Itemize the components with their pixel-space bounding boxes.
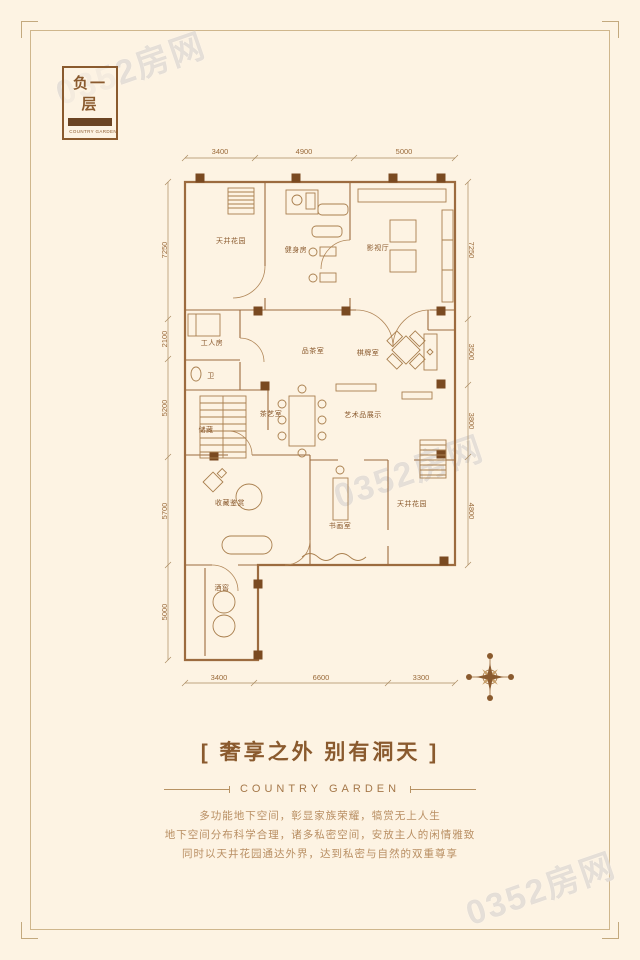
room-label: 卫 bbox=[207, 372, 215, 380]
dim-left-1: 7250 bbox=[160, 242, 169, 259]
maid-room-furniture bbox=[188, 314, 220, 381]
dim-bottom-1: 3400 bbox=[211, 673, 228, 682]
dim-right-2: 3500 bbox=[467, 344, 476, 361]
room-label: 酒窖 bbox=[215, 583, 230, 592]
brochure-page: 0352房网 0352房网 0352房网 负一层 COUNTRY GARDEN … bbox=[0, 0, 640, 960]
corner-mark bbox=[21, 922, 38, 939]
description: 多功能地下空间，彰显家族荣耀，犒赏无上人生 地下空间分布科学合理，诸多私密空间，… bbox=[0, 807, 640, 864]
dim-right-1: 7250 bbox=[467, 242, 476, 259]
corner-mark bbox=[602, 21, 619, 38]
footer: [ 奢享之外 别有洞天 ] COUNTRY GARDEN 多功能地下空间，彰显家… bbox=[0, 736, 640, 864]
dim-bottom-3: 3300 bbox=[413, 673, 430, 682]
room-label: 品茶室 bbox=[302, 346, 325, 355]
description-line: 地下空间分布科学合理，诸多私密空间，安放主人的闲情雅致 bbox=[0, 826, 640, 845]
fireplace bbox=[424, 334, 437, 370]
floor-plan: 3400 4900 5000 3400 6600 3300 7250 2100 … bbox=[140, 140, 520, 710]
room-label: 储藏 bbox=[199, 425, 214, 434]
lightwell-grille-bottom bbox=[420, 440, 446, 478]
dim-bottom-2: 6600 bbox=[313, 673, 330, 682]
calligraphy-desk bbox=[333, 466, 348, 520]
dim-left-3: 5200 bbox=[160, 400, 169, 417]
room-label: 茶艺室 bbox=[260, 409, 283, 418]
dim-top-1: 3400 bbox=[212, 147, 229, 156]
floor-badge: 负一层 COUNTRY GARDEN bbox=[62, 66, 118, 140]
dim-left-5: 5000 bbox=[160, 604, 169, 621]
dim-left-4: 5700 bbox=[160, 503, 169, 520]
corner-mark bbox=[602, 922, 619, 939]
room-label: 艺术品展示 bbox=[344, 410, 382, 419]
dim-right-3: 3800 bbox=[467, 413, 476, 430]
dimension-labels: 3400 4900 5000 3400 6600 3300 7250 2100 … bbox=[160, 147, 476, 682]
brand-row: COUNTRY GARDEN bbox=[0, 783, 640, 795]
dim-right-4: 4800 bbox=[467, 503, 476, 520]
water-feature-wave bbox=[302, 554, 366, 561]
page-title: [ 奢享之外 别有洞天 ] bbox=[0, 736, 640, 766]
wine-barrels bbox=[213, 591, 235, 637]
columns bbox=[196, 174, 449, 660]
tea-table bbox=[278, 385, 326, 457]
compass-icon bbox=[466, 653, 514, 701]
description-line: 同时以天井花园通达外界，达到私密与自然的双重尊享 bbox=[0, 845, 640, 864]
floor-badge-brand: COUNTRY GARDEN bbox=[69, 129, 110, 134]
rule-left bbox=[164, 789, 230, 790]
room-label: 天井花园 bbox=[216, 236, 246, 245]
lightwell-grille-top bbox=[228, 188, 254, 214]
gym-equipment bbox=[286, 190, 348, 282]
room-label: 工人房 bbox=[201, 338, 224, 347]
floor-badge-title: 负一层 bbox=[67, 72, 113, 114]
dim-left-2: 2100 bbox=[160, 331, 169, 348]
floor-badge-band bbox=[68, 118, 112, 126]
room-label: 影视厅 bbox=[367, 243, 390, 252]
room-label: 健身房 bbox=[285, 245, 308, 254]
brand-name: COUNTRY GARDEN bbox=[240, 783, 400, 795]
corner-mark bbox=[21, 21, 38, 38]
art-display-shelves bbox=[336, 384, 432, 399]
room-label: 收藏鉴赏 bbox=[215, 498, 245, 507]
dim-top-2: 4900 bbox=[296, 147, 313, 156]
collection-room-furniture bbox=[203, 466, 272, 554]
rule-right bbox=[410, 789, 476, 790]
dim-top-3: 5000 bbox=[396, 147, 413, 156]
room-labels: 天井花园 健身房 影视厅 工人房 卫 品茶室 棋牌室 储藏 茶艺室 艺术品展示 … bbox=[199, 236, 428, 592]
room-label: 棋牌室 bbox=[357, 348, 380, 357]
description-line: 多功能地下空间，彰显家族荣耀，犒赏无上人生 bbox=[0, 807, 640, 826]
room-label: 书画室 bbox=[329, 521, 352, 530]
room-label: 天井花园 bbox=[397, 499, 427, 508]
